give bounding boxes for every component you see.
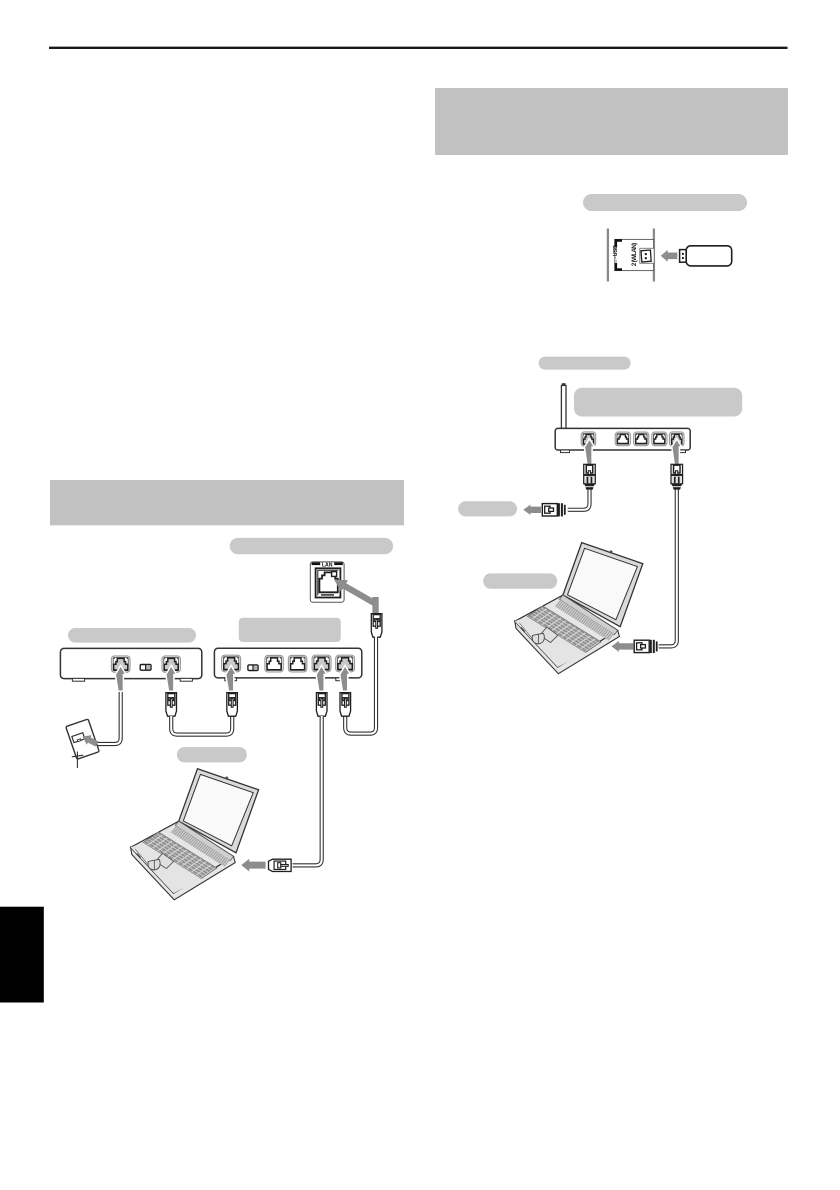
svg-text:2 (WLAN): 2 (WLAN) xyxy=(631,243,638,267)
svg-text:←·USB: ←·USB xyxy=(613,245,619,264)
